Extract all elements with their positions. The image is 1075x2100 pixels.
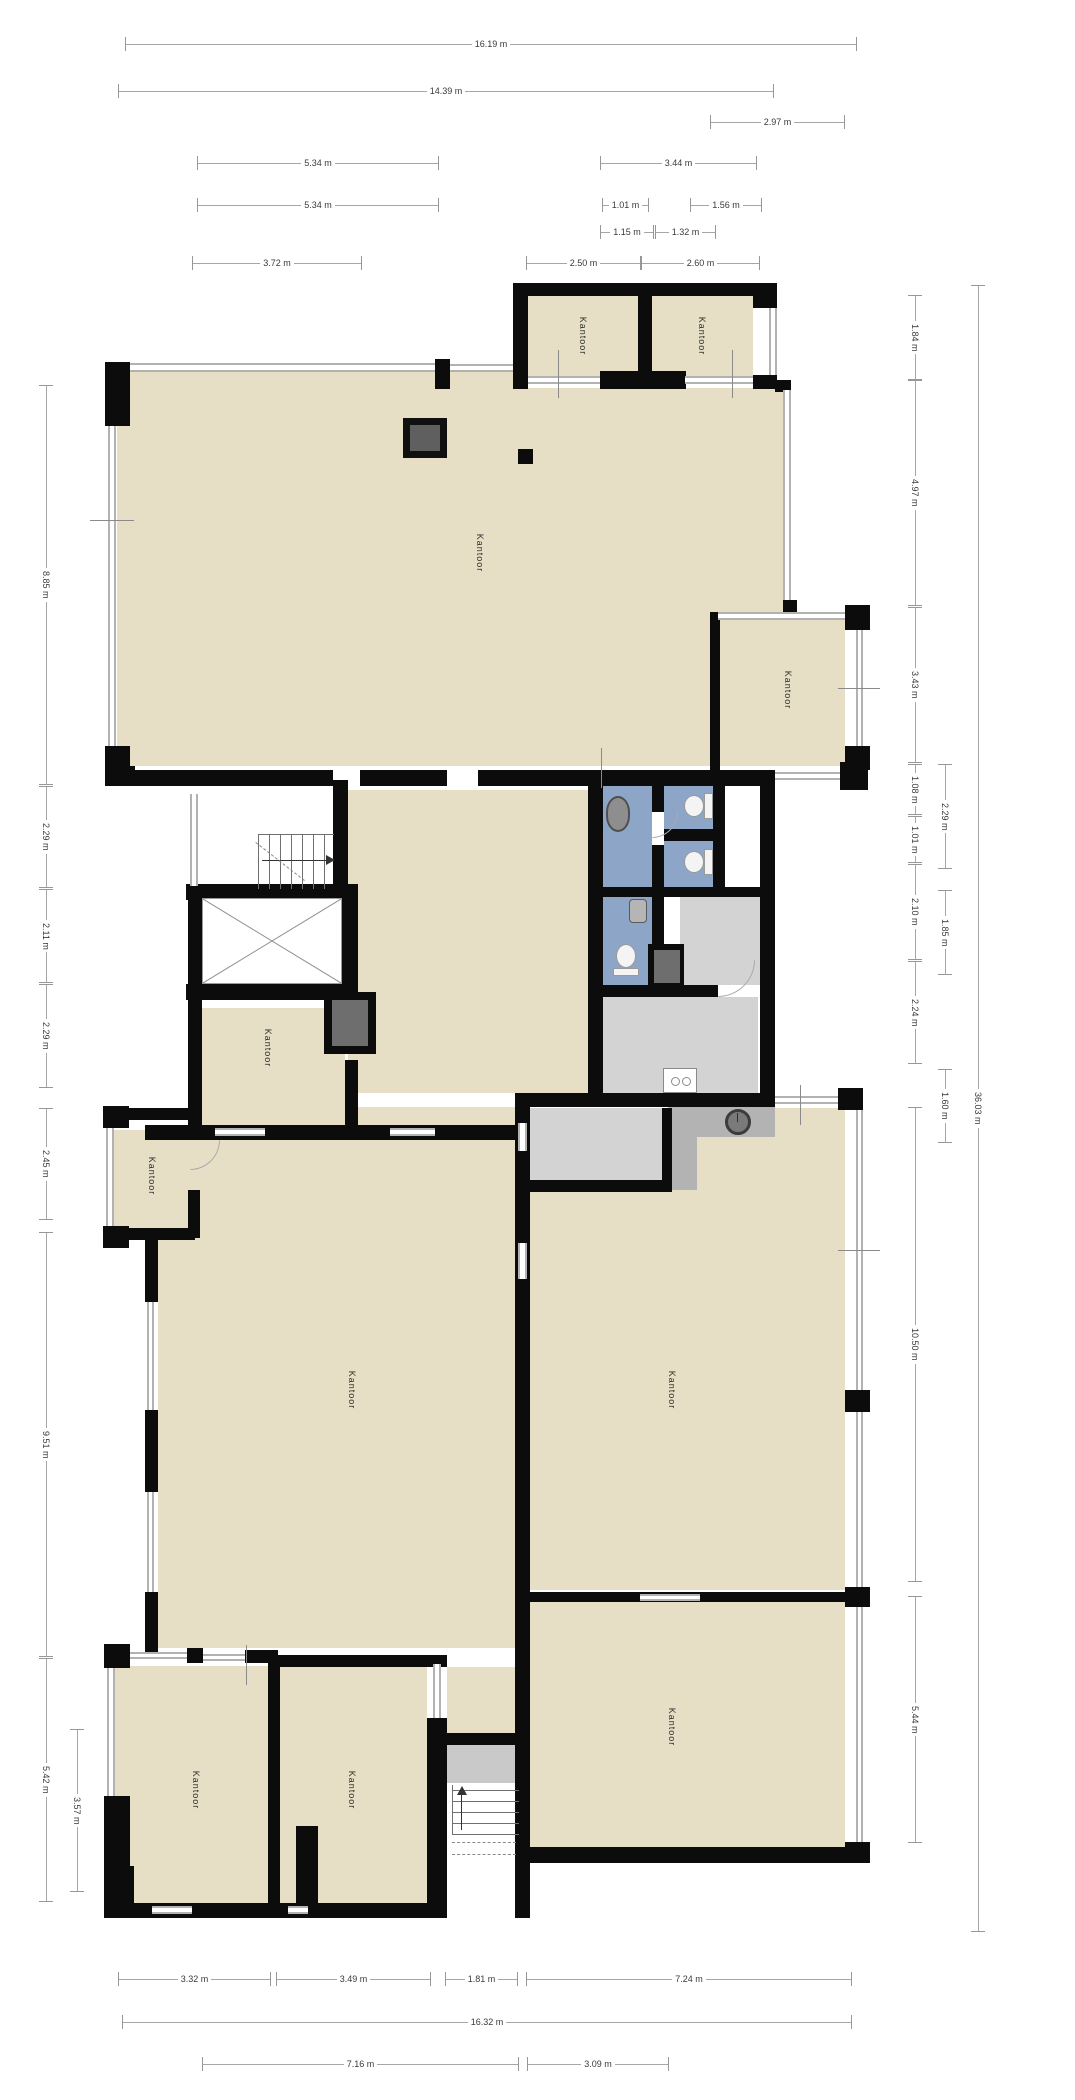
- dimension-v: 2.29 m: [39, 984, 53, 1088]
- wall-segment: [845, 605, 870, 630]
- dimension-h: 1.15 m: [600, 225, 654, 239]
- dimension-v: 2.29 m: [39, 786, 53, 888]
- dimension-v: 5.42 m: [39, 1658, 53, 1902]
- toilet-bowl: [684, 851, 704, 873]
- toilet-bowl: [616, 944, 636, 968]
- wall-segment: [145, 1592, 158, 1658]
- dimension-label: 2.29 m: [41, 820, 51, 854]
- window-tick: [90, 520, 134, 521]
- dimension-label: 2.29 m: [940, 800, 950, 834]
- dimension-v: 2.11 m: [39, 889, 53, 983]
- stair-break-line: [452, 1842, 516, 1843]
- toilet-bowl: [684, 795, 704, 817]
- wall-segment: [845, 1842, 870, 1863]
- room-label: Kantoor: [667, 1708, 677, 1747]
- dimension-label: 5.34 m: [301, 200, 335, 210]
- area-fill: [158, 1140, 515, 1648]
- dimension-h: 2.60 m: [641, 256, 760, 270]
- dimension-h: 3.32 m: [118, 1972, 271, 1986]
- wall-segment: [435, 359, 450, 389]
- window: [147, 1302, 154, 1410]
- wall-segment: [845, 1390, 870, 1412]
- window: [640, 1594, 700, 1601]
- window: [107, 1668, 115, 1796]
- window: [685, 376, 753, 384]
- room-label: Kantoor: [147, 1157, 157, 1196]
- dimension-label: 1.01 m: [609, 200, 643, 210]
- wall-segment: [129, 1228, 195, 1240]
- window: [130, 363, 435, 372]
- wall-segment: [600, 371, 686, 389]
- window-tick: [732, 350, 733, 398]
- wall-segment: [145, 1240, 158, 1302]
- dimension-label: 5.42 m: [41, 1763, 51, 1797]
- dimension-v: 2.24 m: [908, 961, 922, 1064]
- dimension-h: 7.16 m: [202, 2057, 519, 2071]
- window: [190, 794, 198, 886]
- window: [450, 364, 513, 372]
- room-label: Kantoor: [578, 317, 588, 356]
- area-fill: [348, 790, 588, 1093]
- dimension-label: 2.45 m: [41, 1147, 51, 1181]
- dimension-h: 7.24 m: [526, 1972, 852, 1986]
- dimension-label: 3.32 m: [178, 1974, 212, 1984]
- window-tick: [800, 1085, 801, 1125]
- dimension-h: 2.97 m: [710, 115, 845, 129]
- wall-segment: [518, 449, 533, 464]
- wall-segment: [652, 782, 664, 812]
- dimension-h: 3.72 m: [192, 256, 362, 270]
- room-label: Kantoor: [347, 1371, 357, 1410]
- dimension-h: 16.19 m: [125, 37, 857, 51]
- window-tick: [601, 748, 602, 788]
- window-tick: [558, 350, 559, 398]
- wall-segment: [588, 770, 603, 1107]
- window: [518, 1123, 527, 1151]
- area-fill: [668, 1107, 775, 1137]
- wall-segment: [296, 1826, 318, 1906]
- dimension-label: 16.19 m: [472, 39, 511, 49]
- area-fill: [668, 1137, 697, 1190]
- dimension-h: 1.01 m: [602, 198, 649, 212]
- dimension-label: 1.85 m: [940, 916, 950, 950]
- wall-segment: [427, 1718, 447, 1918]
- stair-arrowhead-icon: [457, 1786, 467, 1795]
- dimension-v: 2.45 m: [39, 1108, 53, 1220]
- wall-segment: [187, 1648, 203, 1663]
- shaft: [332, 1000, 368, 1046]
- wall-segment: [103, 1226, 129, 1248]
- dimension-h: 3.09 m: [527, 2057, 669, 2071]
- dimension-label: 8.85 m: [41, 568, 51, 602]
- dimension-v: 8.85 m: [39, 385, 53, 785]
- wall-segment: [333, 780, 348, 886]
- dimension-v: 1.01 m: [908, 816, 922, 863]
- window: [203, 1654, 245, 1661]
- room-label: Kantoor: [697, 317, 707, 356]
- dimension-label: 3.09 m: [581, 2059, 615, 2069]
- wall-segment: [530, 1180, 672, 1192]
- window: [769, 308, 777, 375]
- dimension-v: 3.43 m: [908, 607, 922, 763]
- dimension-label: 36.03 m: [973, 1089, 983, 1128]
- dimension-label: 16.32 m: [468, 2017, 507, 2027]
- window: [775, 1096, 838, 1104]
- dimension-label: 2.10 m: [910, 895, 920, 929]
- area-fill: [530, 1108, 662, 1180]
- window: [215, 1128, 265, 1136]
- dimension-h: 14.39 m: [118, 84, 774, 98]
- wall-segment: [588, 770, 775, 786]
- wall-segment: [145, 1410, 158, 1492]
- room-label: Kantoor: [347, 1771, 357, 1810]
- boiler-icon: [663, 1068, 697, 1093]
- wall-segment: [838, 1088, 863, 1110]
- hand-basin-icon: [629, 899, 647, 923]
- washbasin-icon: [606, 796, 630, 832]
- wall-segment: [753, 375, 777, 389]
- dimension-label: 2.50 m: [567, 258, 601, 268]
- dimension-label: 7.24 m: [672, 1974, 706, 1984]
- area-fill: [530, 1602, 845, 1847]
- wall-segment: [268, 1655, 447, 1667]
- wall-segment: [588, 985, 718, 997]
- elevator-x-icon: [203, 899, 341, 983]
- wall-segment: [845, 746, 870, 770]
- wall-segment: [652, 897, 664, 948]
- stair-arrowhead-icon: [326, 855, 335, 865]
- dimension-label: 7.16 m: [344, 2059, 378, 2069]
- window: [147, 1492, 154, 1592]
- wall-segment: [188, 1190, 200, 1238]
- dimension-v: 4.97 m: [908, 380, 922, 606]
- area-fill: [718, 620, 845, 766]
- dimension-v: 10.50 m: [908, 1107, 922, 1582]
- room-label: Kantoor: [475, 534, 485, 573]
- wall-segment: [103, 1106, 129, 1128]
- wall-segment: [129, 1108, 189, 1120]
- dimension-label: 1.84 m: [910, 321, 920, 355]
- window: [106, 1128, 114, 1226]
- dimension-label: 3.57 m: [72, 1794, 82, 1828]
- dimension-h: 3.49 m: [276, 1972, 431, 1986]
- dimension-v: 1.60 m: [938, 1069, 952, 1143]
- area-fill: [530, 1190, 845, 1590]
- dimension-h: 1.32 m: [655, 225, 716, 239]
- dimension-v: 36.03 m: [971, 285, 985, 1932]
- window: [152, 1906, 192, 1914]
- dimension-label: 4.97 m: [910, 476, 920, 510]
- wall-segment: [588, 887, 772, 897]
- floor-plan-canvas: KantoorKantoorKantoorKantoorKantoorKanto…: [0, 0, 1075, 2100]
- dimension-label: 1.32 m: [669, 227, 703, 237]
- dimension-v: 5.44 m: [908, 1596, 922, 1843]
- window-tick: [838, 688, 880, 689]
- dimension-label: 1.08 m: [910, 773, 920, 807]
- door-swing-arc: [718, 960, 755, 997]
- dimension-label: 1.60 m: [940, 1089, 950, 1123]
- wall-segment: [713, 782, 725, 887]
- elevator: [202, 898, 342, 984]
- dimension-label: 2.29 m: [41, 1019, 51, 1053]
- wall-segment: [513, 283, 528, 389]
- wall-segment: [760, 782, 775, 1107]
- round-fixture-icon: [725, 1109, 751, 1135]
- wall-segment: [104, 1796, 130, 1870]
- dimension-h: 1.56 m: [690, 198, 762, 212]
- dimension-label: 14.39 m: [427, 86, 466, 96]
- dimension-h: 1.81 m: [445, 1972, 518, 1986]
- stair-direction-arrow: [262, 860, 326, 861]
- wall-segment: [447, 1733, 528, 1745]
- stair-direction-arrow: [461, 1792, 462, 1830]
- window: [108, 426, 116, 746]
- area-fill: [725, 782, 760, 887]
- dimension-label: 3.49 m: [337, 1974, 371, 1984]
- dimension-label: 2.11 m: [41, 920, 51, 953]
- dimension-h: 5.34 m: [197, 156, 439, 170]
- dimension-label: 10.50 m: [910, 1325, 920, 1364]
- dimension-v: 2.29 m: [938, 764, 952, 869]
- toilet-tank: [704, 793, 713, 819]
- dimension-label: 2.97 m: [761, 117, 795, 127]
- dimension-label: 1.81 m: [465, 1974, 499, 1984]
- window: [718, 612, 845, 620]
- window: [856, 1412, 863, 1587]
- toilet-tank: [613, 968, 639, 976]
- wall-segment: [268, 1655, 280, 1918]
- staircase: [258, 834, 334, 889]
- wall-segment: [360, 770, 447, 786]
- duct-box-icon: [403, 418, 447, 458]
- dimension-label: 3.43 m: [910, 668, 920, 702]
- dimension-v: 1.08 m: [908, 764, 922, 815]
- dimension-label: 2.60 m: [684, 258, 718, 268]
- dimension-h: 2.50 m: [526, 256, 641, 270]
- wall-segment: [105, 766, 135, 786]
- dimension-v: 1.85 m: [938, 890, 952, 975]
- window: [518, 1243, 527, 1279]
- wall-segment: [515, 1093, 775, 1107]
- dimension-label: 5.44 m: [910, 1703, 920, 1737]
- stair-break-line: [452, 1854, 516, 1855]
- dimension-h: 5.34 m: [197, 198, 439, 212]
- window-tick: [838, 1250, 880, 1251]
- window: [783, 390, 791, 600]
- wall-segment: [753, 283, 777, 308]
- dimension-label: 1.01 m: [910, 823, 920, 857]
- room-label: Kantoor: [263, 1029, 273, 1068]
- area-fill: [602, 782, 652, 887]
- room-label: Kantoor: [667, 1371, 677, 1410]
- wall-segment: [135, 770, 333, 786]
- wall-segment: [105, 362, 130, 426]
- dimension-h: 3.44 m: [600, 156, 757, 170]
- shaft: [654, 950, 680, 983]
- area-fill: [348, 1107, 515, 1125]
- wall-segment: [528, 1847, 863, 1863]
- dimension-label: 3.72 m: [260, 258, 294, 268]
- area-fill: [775, 1108, 845, 1190]
- dimension-v: 1.84 m: [908, 295, 922, 380]
- dimension-v: 9.51 m: [39, 1232, 53, 1657]
- window: [856, 1607, 863, 1842]
- wall-segment: [345, 1060, 358, 1134]
- area-fill: [697, 1133, 775, 1190]
- wall-segment: [478, 770, 595, 786]
- window: [528, 376, 600, 384]
- toilet-tank: [704, 849, 713, 875]
- wall-segment: [845, 1587, 870, 1607]
- dimension-label: 3.44 m: [662, 158, 696, 168]
- window-tick: [246, 1645, 247, 1685]
- window: [130, 1652, 187, 1659]
- dimension-v: 2.10 m: [908, 864, 922, 960]
- room-label: Kantoor: [191, 1771, 201, 1810]
- dimension-h: 16.32 m: [122, 2015, 852, 2029]
- dimension-label: 1.56 m: [709, 200, 743, 210]
- wall-segment: [664, 829, 713, 841]
- window: [390, 1128, 435, 1136]
- dimension-label: 1.15 m: [610, 227, 644, 237]
- dimension-label: 2.24 m: [910, 996, 920, 1030]
- wall-segment: [104, 1644, 130, 1668]
- window: [288, 1906, 308, 1914]
- dimension-label: 5.34 m: [301, 158, 335, 168]
- wall-segment: [652, 845, 664, 887]
- room-label: Kantoor: [783, 671, 793, 710]
- wall-segment: [662, 1108, 672, 1192]
- wall-segment: [710, 612, 720, 770]
- dimension-label: 9.51 m: [41, 1428, 51, 1462]
- window: [433, 1664, 441, 1718]
- area-fill: [117, 371, 515, 766]
- wall-segment: [342, 884, 358, 1000]
- window: [775, 772, 840, 780]
- wall-segment: [145, 1125, 520, 1140]
- dimension-v: 3.57 m: [70, 1729, 84, 1892]
- wall-segment: [188, 1108, 200, 1138]
